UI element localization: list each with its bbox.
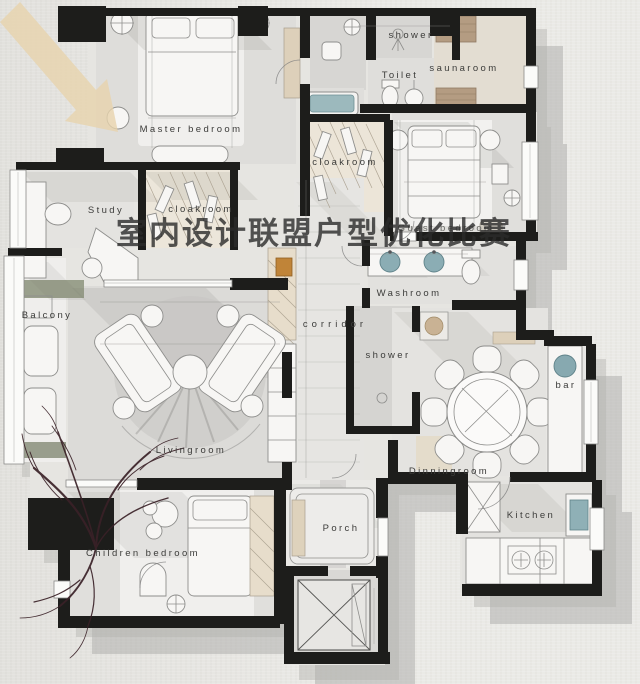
side-table-1	[141, 305, 163, 327]
bar-sink	[554, 355, 576, 377]
label-dinningroom: Dinningroom	[409, 466, 489, 477]
corridor-accent-box	[276, 258, 292, 276]
guest-ceiling-symbol	[504, 190, 520, 206]
guest-nightstand-right	[480, 130, 500, 150]
side-table-2	[217, 305, 239, 327]
label-toilet: Toilet	[382, 70, 419, 81]
label-porch: Porch	[323, 523, 360, 534]
master-bed	[146, 12, 238, 116]
label-children-bedroom: Children bedroom	[86, 548, 200, 559]
master-bench	[152, 146, 228, 163]
label-livingroom: Livingroom	[156, 445, 226, 456]
master-closet	[284, 28, 300, 98]
floorplan-drawing: Master bedroom Study cloakroom shower To…	[0, 0, 640, 684]
label-cloakroom-master: cloakroom	[168, 204, 233, 215]
guest-bed	[408, 126, 480, 218]
balcony-planter-bottom	[20, 442, 66, 458]
watermark-text: 室内设计联盟户型优化比赛	[116, 216, 512, 252]
elevator	[298, 580, 370, 650]
side-table-4	[241, 395, 263, 417]
children-table-small2	[146, 523, 162, 539]
guest-desk	[492, 164, 508, 184]
floorplan-canvas: Master bedroom Study cloakroom shower To…	[0, 0, 640, 684]
side-table-3	[113, 397, 135, 419]
children-ceiling-symbol	[167, 595, 185, 613]
label-corridor: corridor	[303, 319, 367, 330]
label-balcony: Balcony	[22, 310, 73, 321]
label-study: Study	[88, 205, 124, 216]
children-table-small1	[143, 501, 157, 515]
children-arch-door	[140, 563, 166, 596]
washroom-mat	[420, 312, 448, 340]
bathtub	[306, 92, 358, 115]
label-bar: bar	[556, 380, 577, 391]
washroom-vanity	[368, 248, 472, 276]
label-master-bedroom: Master bedroom	[140, 124, 243, 135]
washroom-toilet	[462, 250, 480, 284]
dining-set	[421, 346, 553, 478]
coffee-table	[173, 355, 207, 389]
children-wardrobe	[250, 496, 274, 596]
label-shower-top: shower	[388, 30, 433, 41]
label-washroom: Washroom	[377, 288, 442, 299]
label-shower-middle: shower	[365, 350, 410, 361]
label-kitchen: Kitchen	[507, 510, 556, 521]
kitchen-sink	[566, 494, 592, 536]
children-bed	[188, 496, 252, 596]
label-saunaroom: saunaroom	[429, 63, 498, 74]
label-cloakroom-guest: cloakroom	[312, 157, 377, 168]
